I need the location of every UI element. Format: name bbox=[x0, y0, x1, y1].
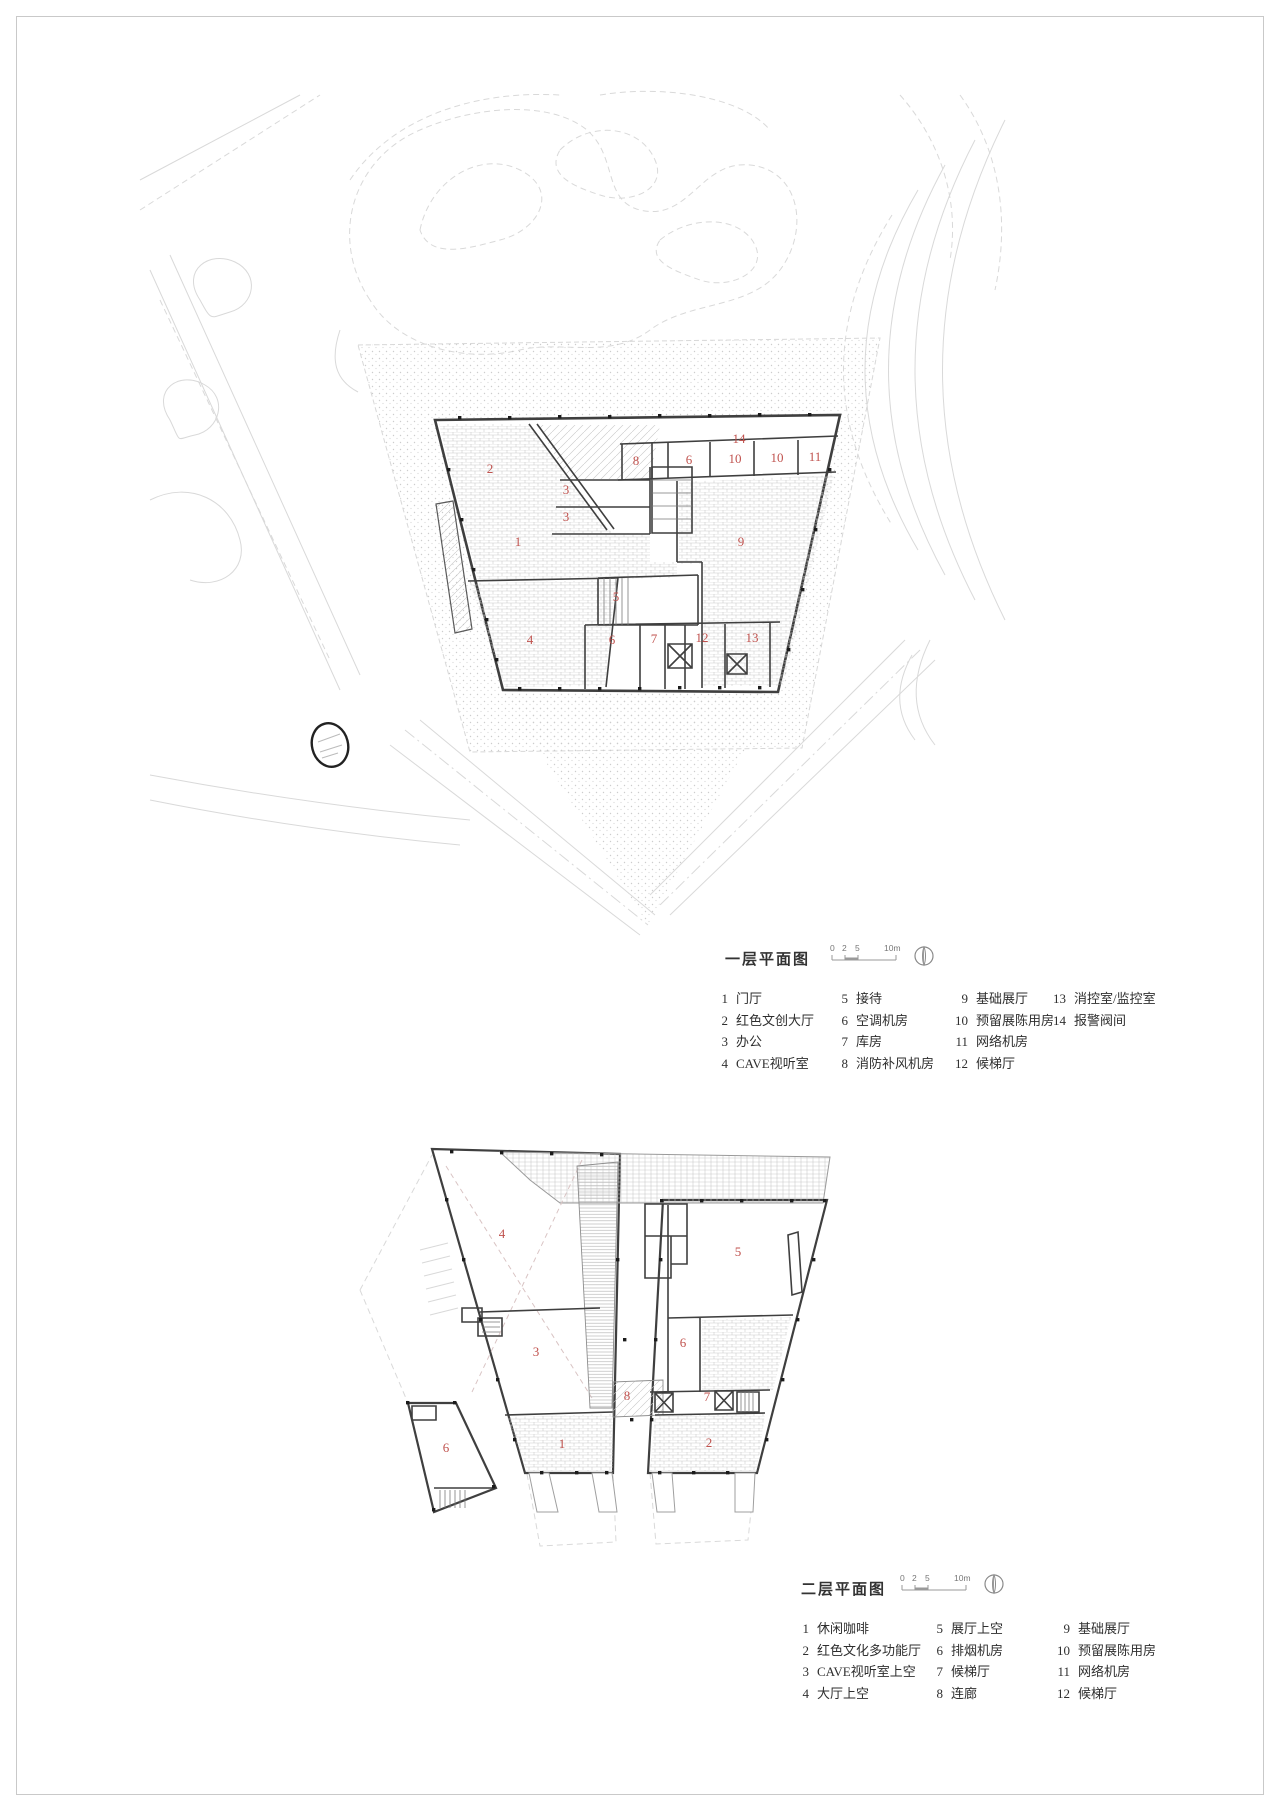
landform-contour bbox=[350, 110, 797, 355]
legend-num: 6 bbox=[927, 1640, 943, 1662]
legend-num: 1 bbox=[793, 1618, 809, 1640]
room-number: 10 bbox=[729, 451, 742, 466]
legend-item: 1门厅 bbox=[712, 988, 814, 1010]
legend-num: 2 bbox=[712, 1010, 728, 1032]
room-number: 6 bbox=[686, 452, 693, 467]
legend-item: 3CAVE视听室上空 bbox=[793, 1661, 921, 1683]
drawing-canvas: 2 3 3 1 8 6 10 10 11 14 9 5 4 6 7 12 13 bbox=[0, 0, 1280, 1811]
legend-item: 13消控室/监控室 bbox=[1046, 988, 1156, 1010]
plan2-legend-col1: 1休闲咖啡 2红色文化多功能厅 3CAVE视听室上空 4大厅上空 bbox=[793, 1618, 921, 1704]
legend-label: 报警阀间 bbox=[1074, 1010, 1126, 1032]
west-stair-ticks bbox=[420, 1243, 458, 1315]
room-number: 3 bbox=[563, 509, 570, 524]
plan1-title: 一层平面图 bbox=[725, 948, 810, 969]
room-number: 11 bbox=[809, 449, 822, 464]
legend-label: 休闲咖啡 bbox=[817, 1618, 869, 1640]
legend-label: 候梯厅 bbox=[976, 1053, 1015, 1075]
legend-item: 7库房 bbox=[832, 1031, 934, 1053]
legend-num: 4 bbox=[712, 1053, 728, 1075]
legend-num: 5 bbox=[832, 988, 848, 1010]
legend-label: 候梯厅 bbox=[1078, 1683, 1117, 1705]
plan2-roof-hatch bbox=[500, 1152, 830, 1203]
room-number: 4 bbox=[527, 632, 534, 647]
room-number: 3 bbox=[563, 482, 570, 497]
room-number: 1 bbox=[515, 534, 522, 549]
legend-num: 12 bbox=[948, 1053, 968, 1075]
scale-label: 5 bbox=[925, 1573, 930, 1583]
legend-num: 10 bbox=[948, 1010, 968, 1032]
sketch-circle-annotation bbox=[307, 719, 353, 770]
legend-label: 候梯厅 bbox=[951, 1661, 990, 1683]
legend-num: 14 bbox=[1046, 1010, 1066, 1032]
scale-label: 0 bbox=[830, 943, 835, 953]
legend-label: 消控室/监控室 bbox=[1074, 988, 1156, 1010]
legend-num: 10 bbox=[1050, 1640, 1070, 1662]
legend-label: 大厅上空 bbox=[817, 1683, 869, 1705]
plan2-legend-col3: 9基础展厅 10预留展陈用房 11网络机房 12候梯厅 bbox=[1050, 1618, 1156, 1704]
room-number: 8 bbox=[624, 1388, 631, 1403]
plan1-scale-bar: 0 2 5 10m bbox=[828, 942, 908, 968]
scale-label: 2 bbox=[912, 1573, 917, 1583]
legend-num: 7 bbox=[832, 1031, 848, 1053]
legend-item: 6排烟机房 bbox=[927, 1640, 1003, 1662]
legend-num: 7 bbox=[927, 1661, 943, 1683]
legend-num: 3 bbox=[712, 1031, 728, 1053]
legend-item: 4大厅上空 bbox=[793, 1683, 921, 1705]
room-number: 2 bbox=[487, 461, 494, 476]
legend-label: 红色文化多功能厅 bbox=[817, 1640, 921, 1662]
legend-item: 1休闲咖啡 bbox=[793, 1618, 921, 1640]
legend-label: 网络机房 bbox=[1078, 1661, 1130, 1683]
north-arrow-icon bbox=[982, 1572, 1006, 1596]
plan2-legend-col2: 5展厅上空 6排烟机房 7候梯厅 8连廊 bbox=[927, 1618, 1003, 1704]
room-number: 2 bbox=[706, 1435, 713, 1450]
legend-item: 11网络机房 bbox=[948, 1031, 1054, 1053]
room-number: 1 bbox=[559, 1436, 566, 1451]
room-number: 12 bbox=[696, 630, 709, 645]
scale-label: 10m bbox=[954, 1573, 971, 1583]
legend-num: 8 bbox=[832, 1053, 848, 1075]
legend-item: 4CAVE视听室 bbox=[712, 1053, 814, 1075]
plan2-title: 二层平面图 bbox=[801, 1578, 886, 1599]
room-number: 14 bbox=[733, 431, 747, 446]
legend-label: 预留展陈用房 bbox=[1078, 1640, 1156, 1662]
room-number: 7 bbox=[651, 631, 658, 646]
room-number: 9 bbox=[738, 534, 745, 549]
plan2-escalator-feet bbox=[529, 1473, 755, 1512]
legend-label: 连廊 bbox=[951, 1683, 977, 1705]
plan2-scale-bar: 0 2 5 10m bbox=[898, 1572, 978, 1598]
legend-item: 9基础展厅 bbox=[948, 988, 1054, 1010]
legend-label: 办公 bbox=[736, 1031, 762, 1053]
room-number: 6 bbox=[680, 1335, 687, 1350]
room-number: 3 bbox=[533, 1344, 540, 1359]
scale-label: 0 bbox=[900, 1573, 905, 1583]
legend-item: 12候梯厅 bbox=[948, 1053, 1054, 1075]
legend-label: 消防补风机房 bbox=[856, 1053, 934, 1075]
legend-num: 11 bbox=[948, 1031, 968, 1053]
legend-item: 11网络机房 bbox=[1050, 1661, 1156, 1683]
legend-item: 5接待 bbox=[832, 988, 934, 1010]
legend-item: 9基础展厅 bbox=[1050, 1618, 1156, 1640]
legend-label: 红色文创大厅 bbox=[736, 1010, 814, 1032]
room-number: 4 bbox=[499, 1226, 506, 1241]
legend-num: 4 bbox=[793, 1683, 809, 1705]
legend-item: 7候梯厅 bbox=[927, 1661, 1003, 1683]
legend-num: 8 bbox=[927, 1683, 943, 1705]
room-number: 5 bbox=[735, 1244, 742, 1259]
north-arrow-icon bbox=[912, 944, 936, 968]
plan1-legend-col1: 1门厅 2红色文创大厅 3办公 4CAVE视听室 bbox=[712, 988, 814, 1074]
plan1-legend-col3: 9基础展厅 10预留展陈用房 11网络机房 12候梯厅 bbox=[948, 988, 1054, 1074]
legend-label: 门厅 bbox=[736, 988, 762, 1010]
floor-plan-2: 4 5 3 6 8 7 1 2 6 bbox=[360, 1149, 830, 1546]
legend-num: 9 bbox=[948, 988, 968, 1010]
legend-label: 库房 bbox=[856, 1031, 882, 1053]
legend-item: 14报警阀间 bbox=[1046, 1010, 1156, 1032]
legend-item: 6空调机房 bbox=[832, 1010, 934, 1032]
legend-label: 基础展厅 bbox=[976, 988, 1028, 1010]
legend-label: 排烟机房 bbox=[951, 1640, 1003, 1662]
room-number: 5 bbox=[613, 589, 620, 604]
legend-label: CAVE视听室上空 bbox=[817, 1661, 916, 1683]
legend-num: 11 bbox=[1050, 1661, 1070, 1683]
pond-shapes bbox=[150, 258, 251, 582]
scale-label: 10m bbox=[884, 943, 901, 953]
legend-item: 10预留展陈用房 bbox=[1050, 1640, 1156, 1662]
scale-label: 5 bbox=[855, 943, 860, 953]
legend-num: 13 bbox=[1046, 988, 1066, 1010]
legend-num: 2 bbox=[793, 1640, 809, 1662]
legend-item: 8连廊 bbox=[927, 1683, 1003, 1705]
room-number: 6 bbox=[609, 632, 616, 647]
legend-item: 8消防补风机房 bbox=[832, 1053, 934, 1075]
room-number: 7 bbox=[704, 1389, 711, 1404]
legend-label: 网络机房 bbox=[976, 1031, 1028, 1053]
legend-num: 3 bbox=[793, 1661, 809, 1683]
legend-item: 2红色文创大厅 bbox=[712, 1010, 814, 1032]
legend-num: 5 bbox=[927, 1618, 943, 1640]
plan1-legend-col4: 13消控室/监控室 14报警阀间 bbox=[1046, 988, 1156, 1031]
legend-num: 9 bbox=[1050, 1618, 1070, 1640]
legend-item: 10预留展陈用房 bbox=[948, 1010, 1054, 1032]
legend-label: 预留展陈用房 bbox=[976, 1010, 1054, 1032]
legend-label: 接待 bbox=[856, 988, 882, 1010]
legend-num: 6 bbox=[832, 1010, 848, 1032]
legend-item: 2红色文化多功能厅 bbox=[793, 1640, 921, 1662]
legend-label: 基础展厅 bbox=[1078, 1618, 1130, 1640]
amphitheater-terraces bbox=[844, 120, 1006, 745]
legend-label: 空调机房 bbox=[856, 1010, 908, 1032]
room-number: 13 bbox=[746, 630, 759, 645]
room-number: 6 bbox=[443, 1440, 450, 1455]
legend-num: 1 bbox=[712, 988, 728, 1010]
legend-item: 5展厅上空 bbox=[927, 1618, 1003, 1640]
legend-label: CAVE视听室 bbox=[736, 1053, 809, 1075]
legend-num: 12 bbox=[1050, 1683, 1070, 1705]
legend-label: 展厅上空 bbox=[951, 1618, 1003, 1640]
legend-item: 3办公 bbox=[712, 1031, 814, 1053]
scale-label: 2 bbox=[842, 943, 847, 953]
legend-item: 12候梯厅 bbox=[1050, 1683, 1156, 1705]
room-number: 10 bbox=[771, 450, 784, 465]
plan1-legend-col2: 5接待 6空调机房 7库房 8消防补风机房 bbox=[832, 988, 934, 1074]
room-number: 8 bbox=[633, 453, 640, 468]
